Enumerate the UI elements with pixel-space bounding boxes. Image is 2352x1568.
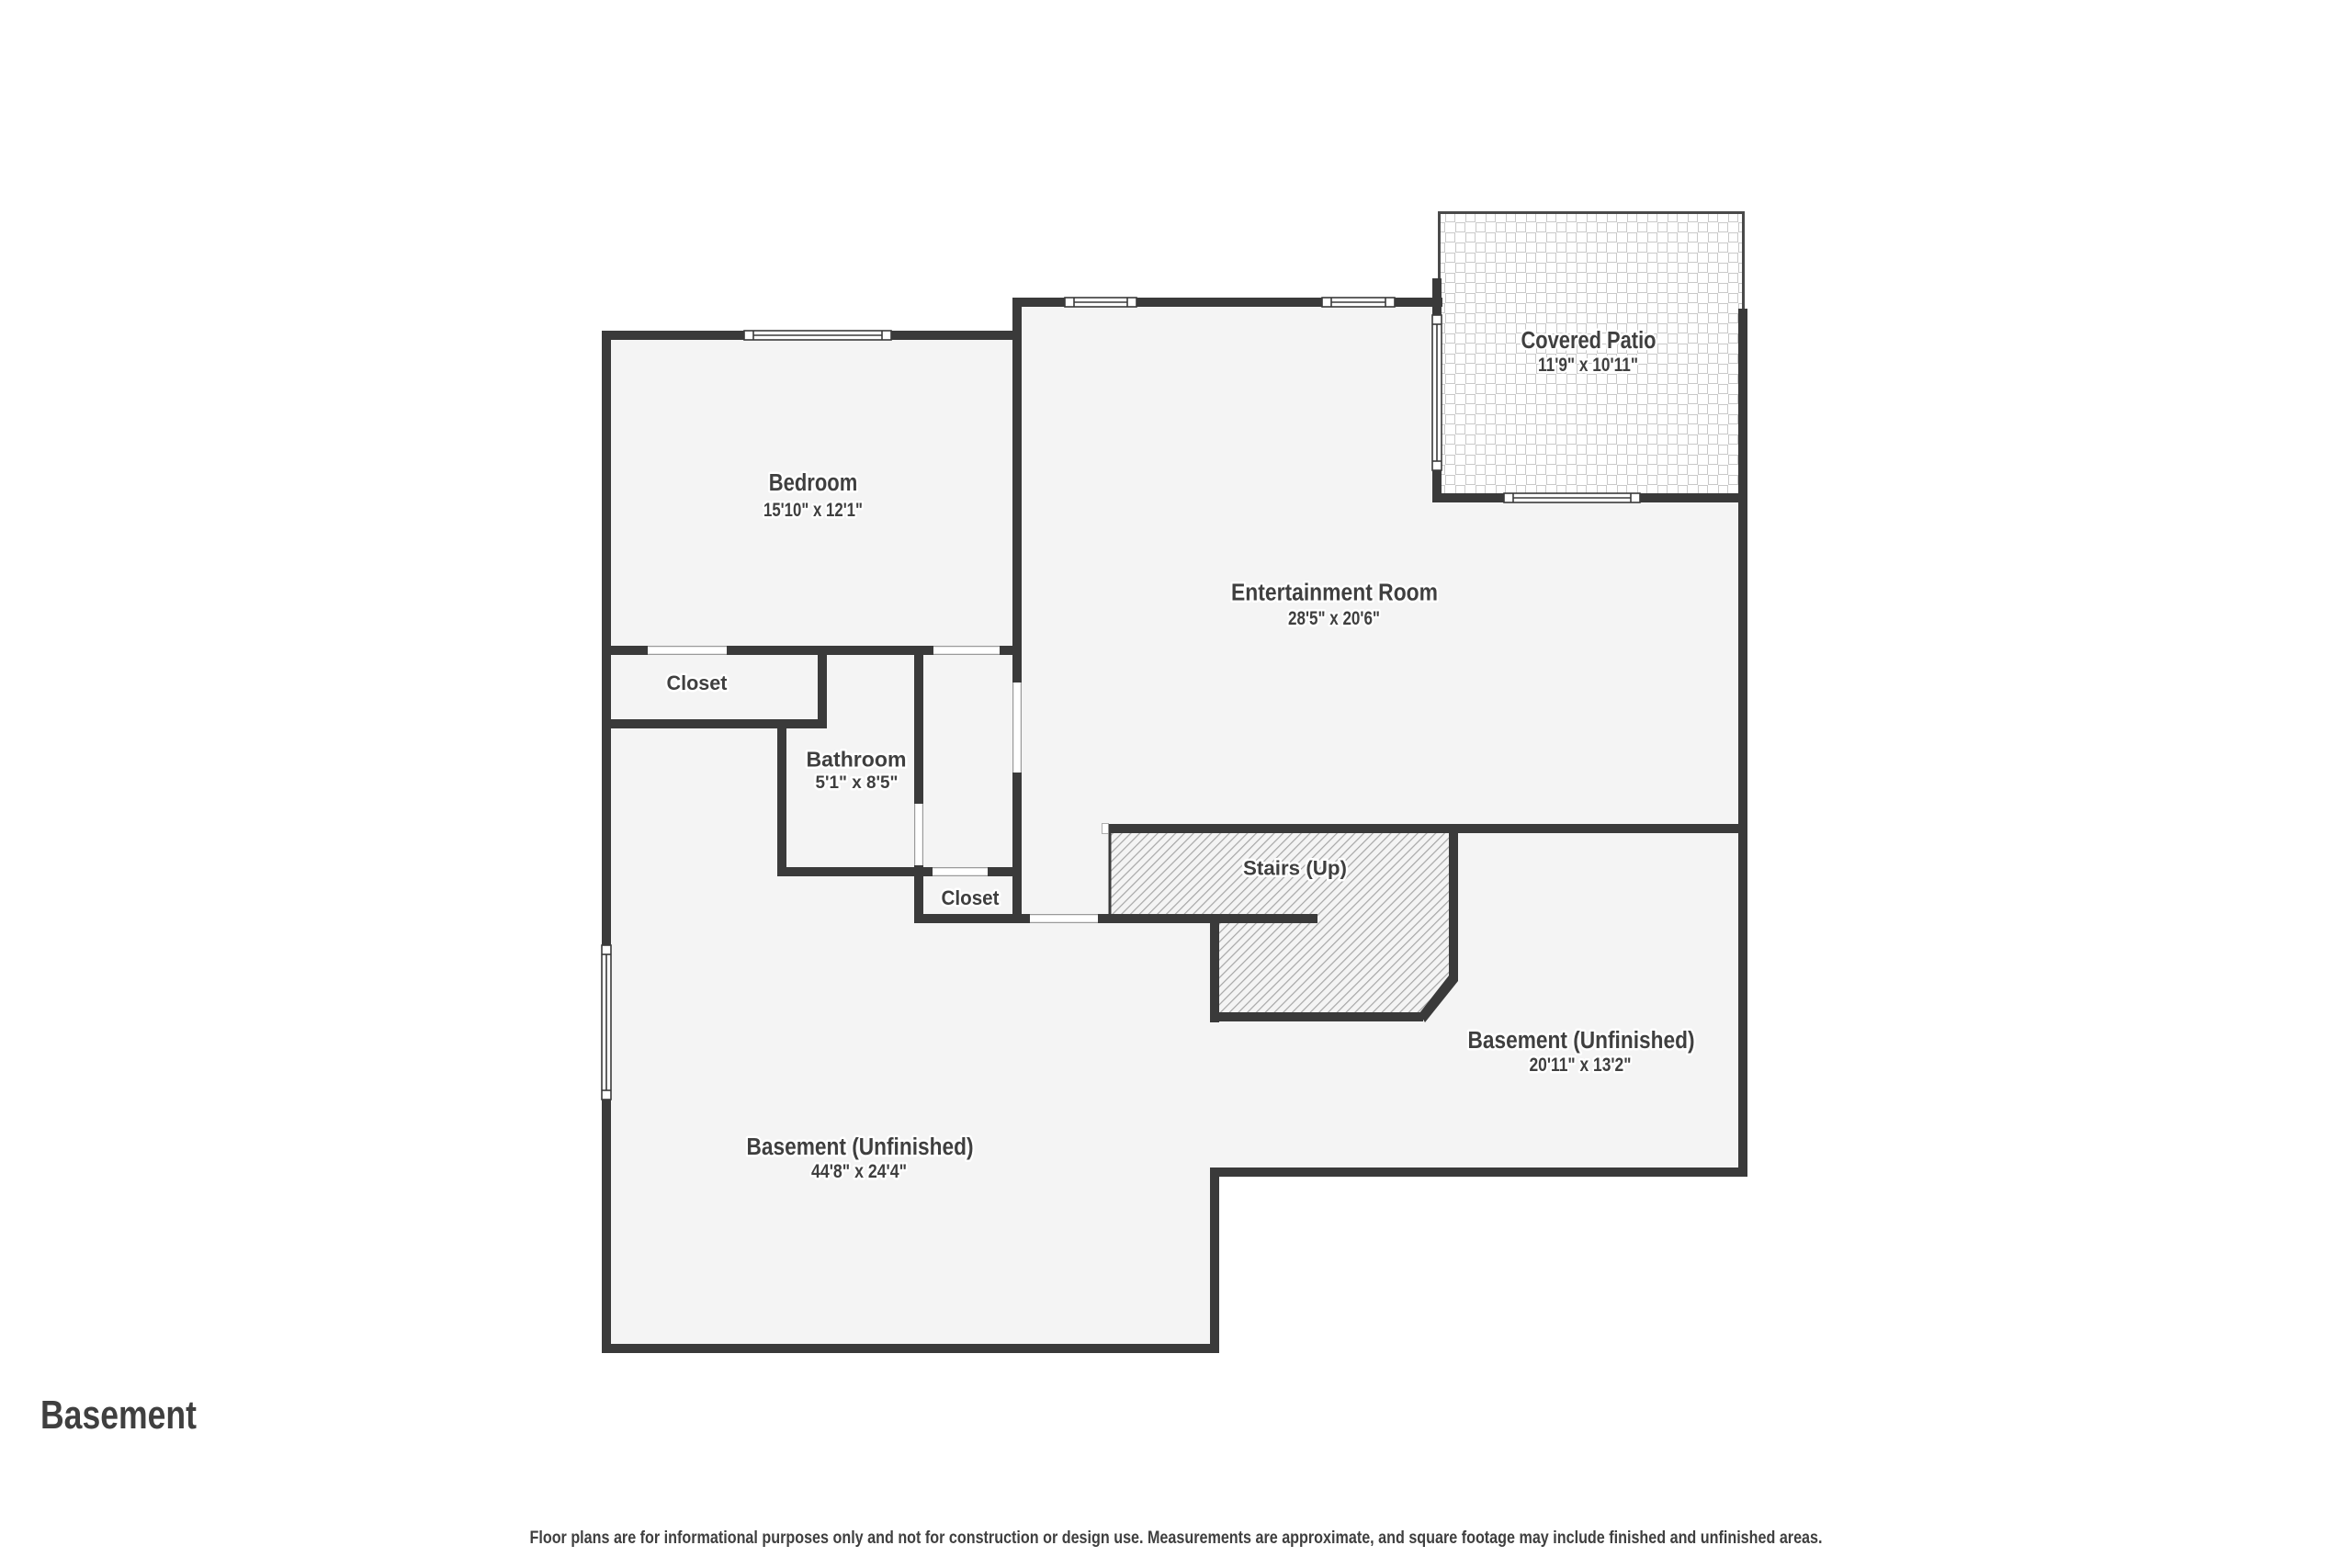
svg-text:Closet: Closet <box>942 886 1001 909</box>
svg-text:Closet: Closet <box>667 671 729 694</box>
svg-text:28'5" x 20'6": 28'5" x 20'6" <box>1288 608 1380 629</box>
svg-text:Bedroom: Bedroom <box>769 470 858 496</box>
svg-text:Covered Patio: Covered Patio <box>1521 328 1657 354</box>
svg-text:5'1" x 8'5": 5'1" x 8'5" <box>816 773 899 793</box>
svg-text:11'9" x 10'11": 11'9" x 10'11" <box>1538 355 1638 376</box>
svg-text:Floor plans are for informatio: Floor plans are for informational purpos… <box>530 1529 1823 1548</box>
svg-text:Stairs (Up): Stairs (Up) <box>1243 857 1347 880</box>
svg-text:15'10" x 12'1": 15'10" x 12'1" <box>763 500 863 521</box>
svg-text:Bathroom: Bathroom <box>807 748 907 772</box>
svg-text:44'8" x 24'4": 44'8" x 24'4" <box>811 1161 907 1182</box>
svg-text:20'11" x 13'2": 20'11" x 13'2" <box>1530 1055 1632 1076</box>
svg-text:Basement: Basement <box>40 1393 197 1438</box>
svg-text:Basement (Unfinished): Basement (Unfinished) <box>1468 1028 1695 1054</box>
svg-text:Entertainment Room: Entertainment Room <box>1231 581 1438 606</box>
svg-text:Basement (Unfinished): Basement (Unfinished) <box>747 1134 974 1160</box>
